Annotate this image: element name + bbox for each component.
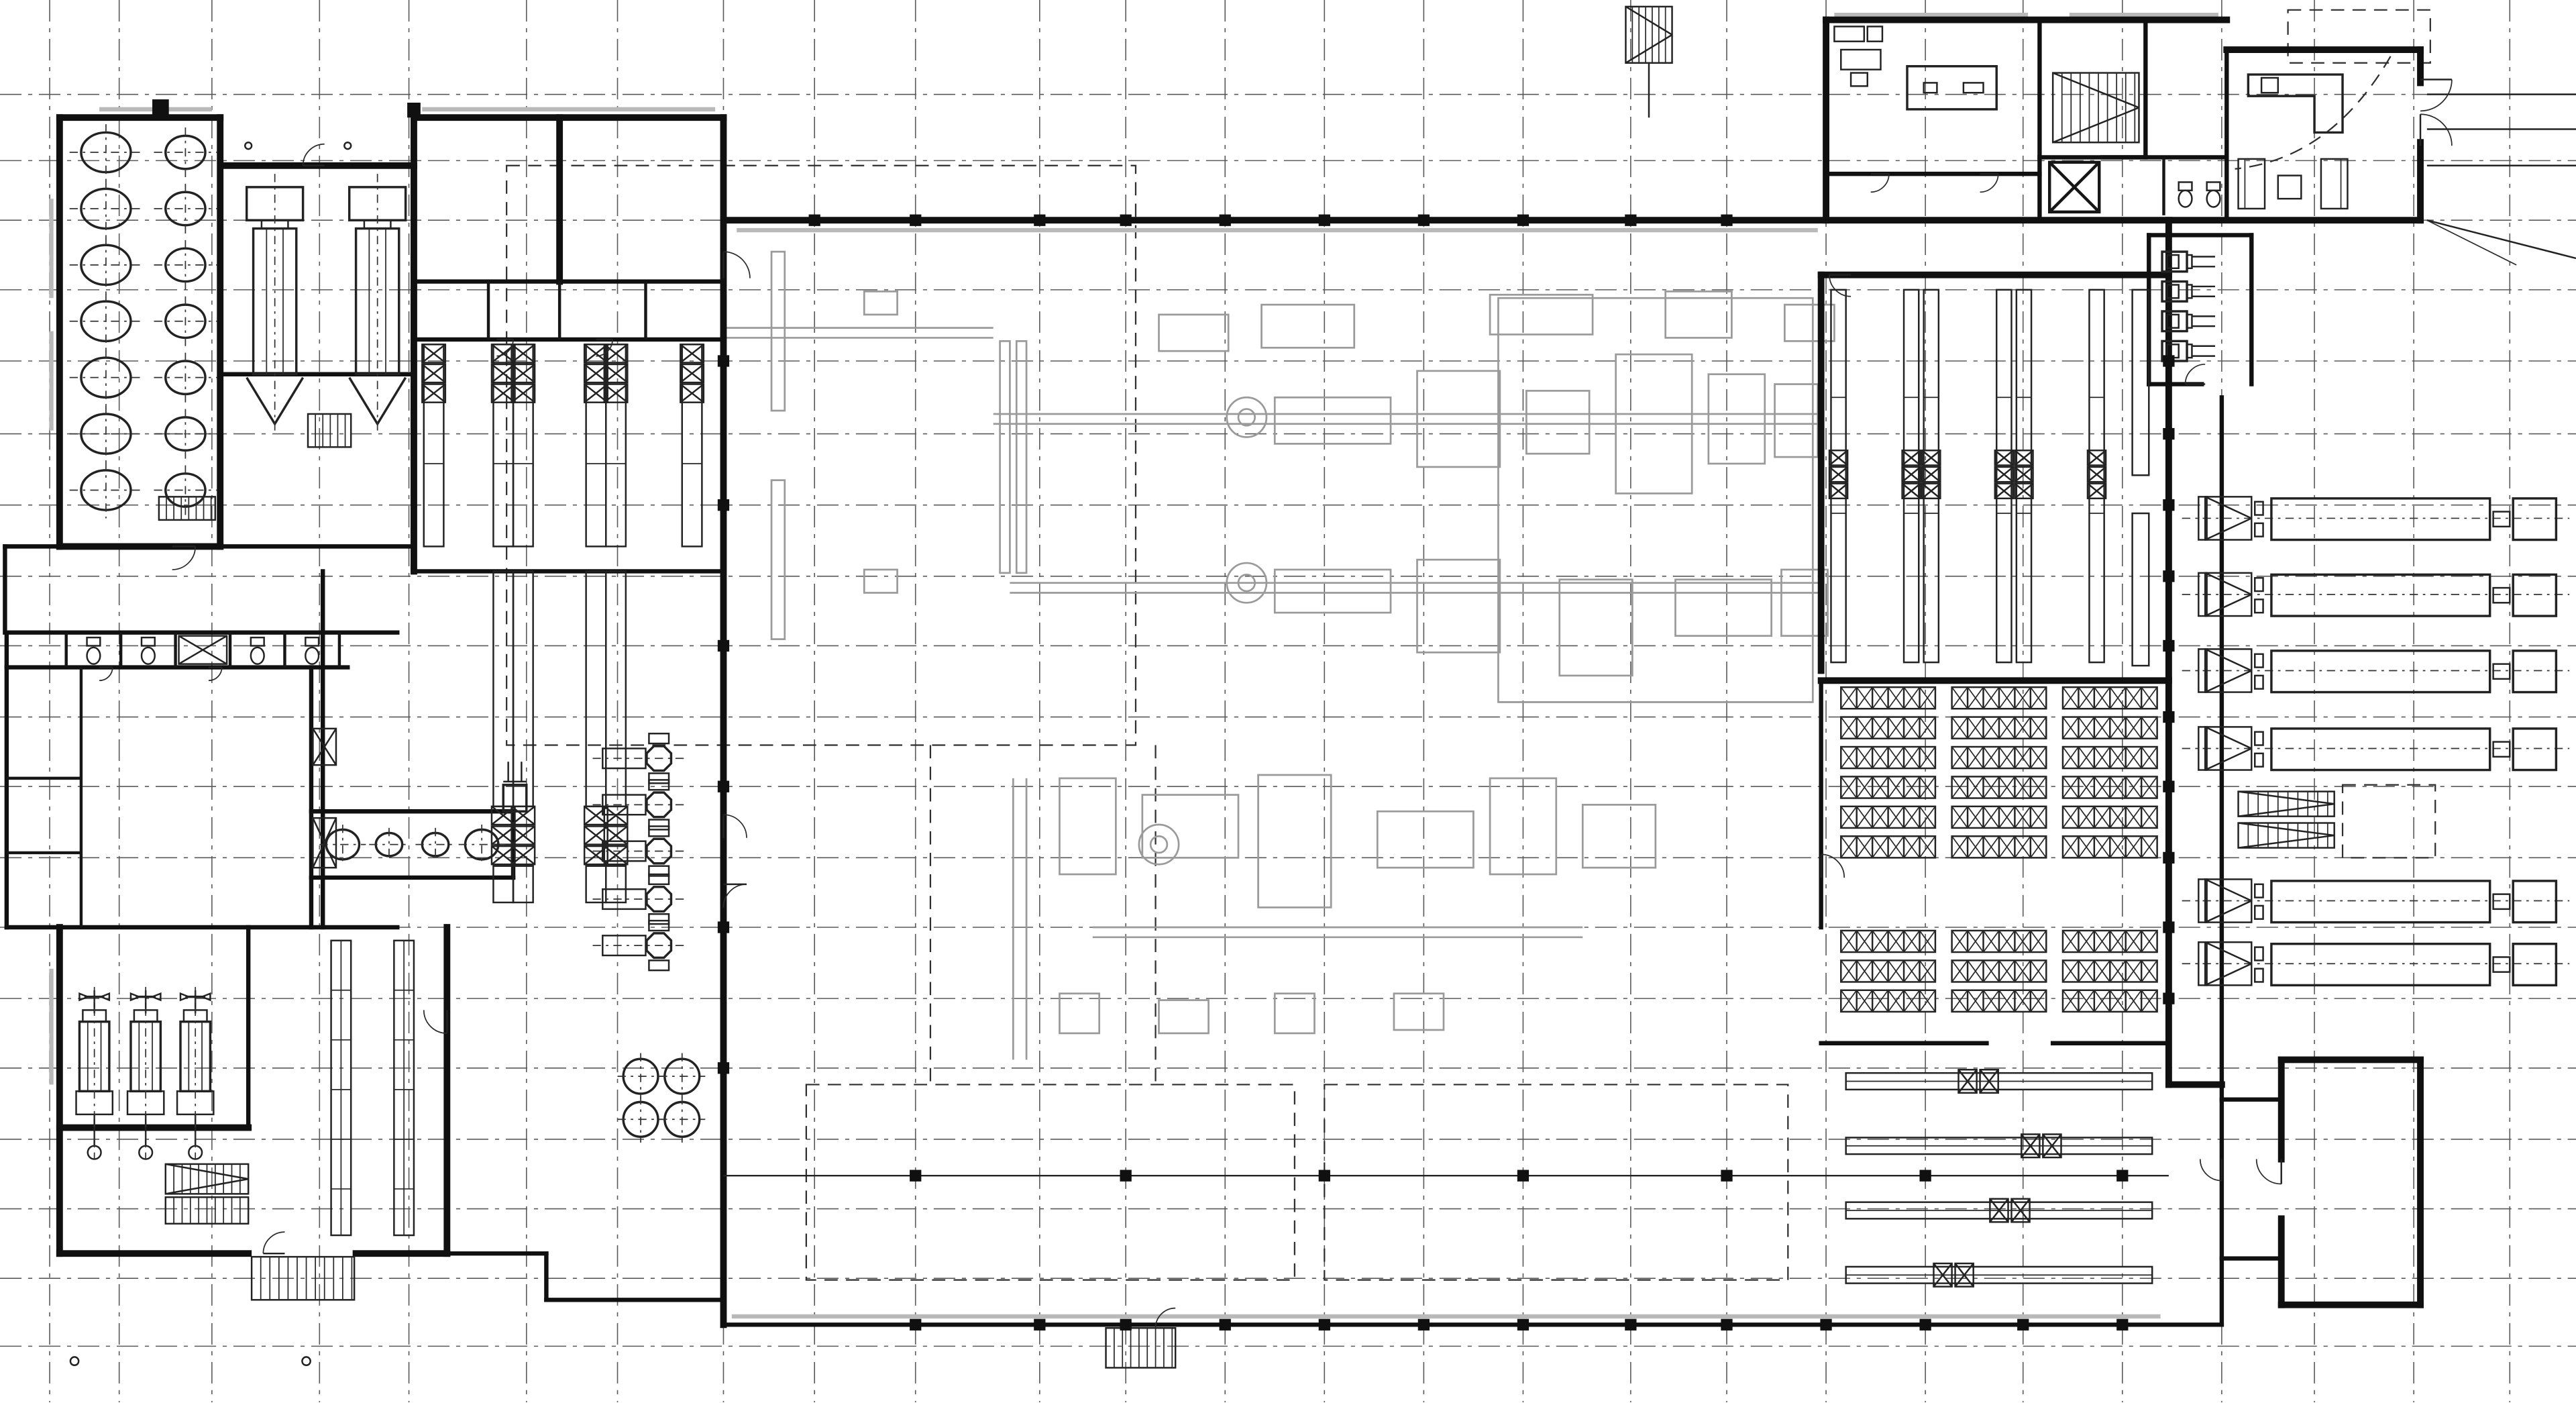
office-block (1834, 26, 2576, 264)
tank-room (70, 124, 217, 520)
toilet-block (66, 633, 339, 681)
fermenter-room (76, 987, 214, 1159)
pump-row (592, 733, 685, 970)
rack-storage (1841, 687, 2157, 1012)
structural-columns (718, 215, 2175, 1331)
glazing-strips (52, 15, 2218, 1316)
forklift-room (503, 252, 2215, 811)
misc-symbols (70, 142, 351, 1365)
walls (5, 20, 2420, 1325)
floor-plan-canvas (0, 0, 2576, 1402)
loading-docks (2182, 497, 2569, 985)
machinery-lines (723, 252, 1834, 1059)
pallet-conveyor-block (1829, 290, 2149, 666)
grid-lines (0, 0, 2576, 1402)
conveyor-strips (422, 344, 704, 902)
mill-units (247, 174, 406, 433)
cellar-tanks (618, 1053, 706, 1143)
se-pallet-rows (1846, 1070, 2153, 1286)
bench-room (331, 941, 414, 1235)
